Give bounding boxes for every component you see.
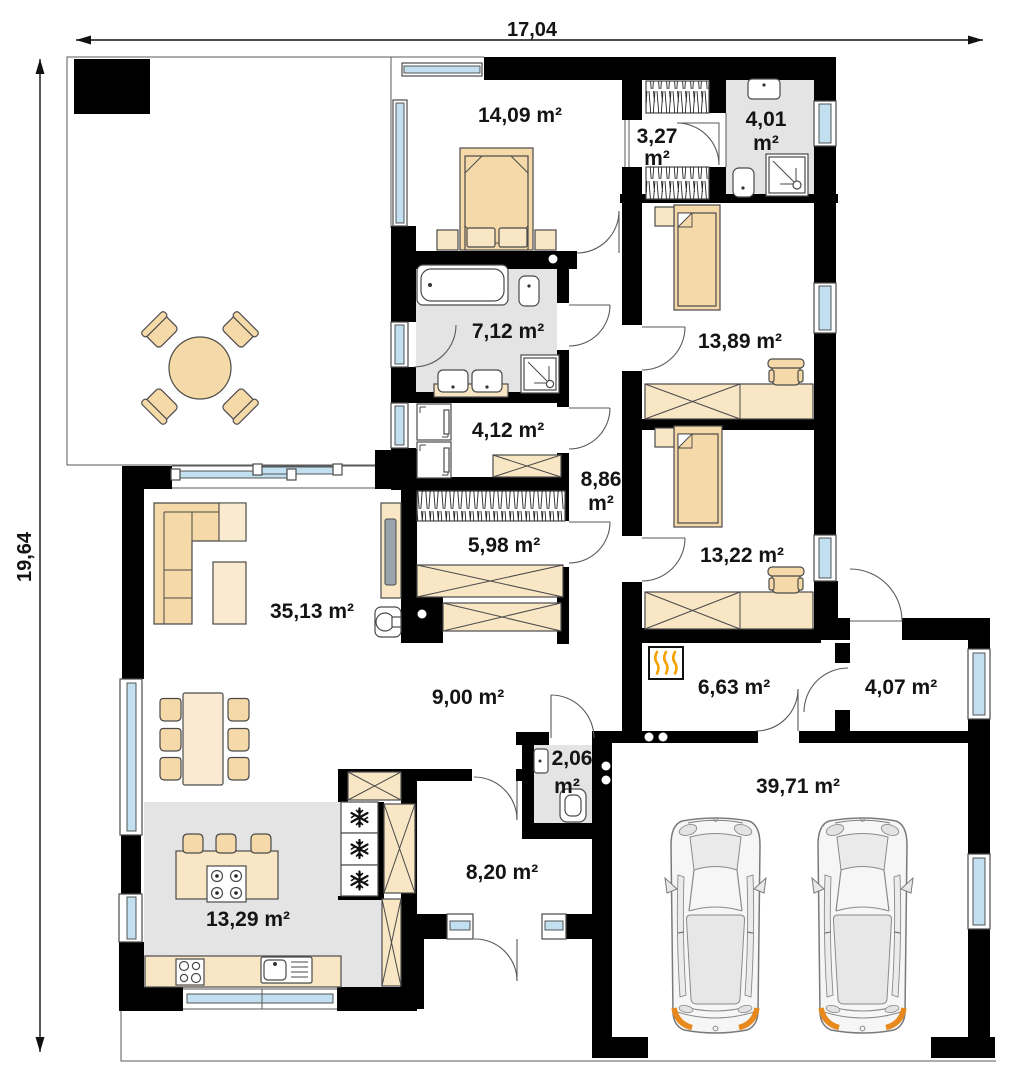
svg-text:2,06: 2,06 — [552, 747, 593, 770]
svg-text:13,29 m²: 13,29 m² — [206, 908, 290, 931]
svg-text:m²: m² — [588, 492, 614, 515]
svg-text:3,27: 3,27 — [637, 125, 678, 148]
svg-text:13,89 m²: 13,89 m² — [698, 330, 782, 353]
svg-text:8,20 m²: 8,20 m² — [466, 861, 538, 884]
svg-text:7,12 m²: 7,12 m² — [472, 320, 544, 343]
svg-text:5,98 m²: 5,98 m² — [468, 534, 540, 557]
svg-text:17,04: 17,04 — [507, 19, 558, 41]
svg-text:19,64: 19,64 — [14, 531, 36, 582]
svg-text:13,22 m²: 13,22 m² — [700, 544, 784, 567]
svg-text:m²: m² — [554, 775, 580, 798]
svg-text:4,01: 4,01 — [746, 108, 787, 131]
svg-text:35,13 m²: 35,13 m² — [270, 600, 354, 623]
svg-text:9,00 m²: 9,00 m² — [432, 686, 504, 709]
svg-text:8,86: 8,86 — [581, 468, 622, 491]
svg-text:6,63 m²: 6,63 m² — [698, 676, 770, 699]
svg-text:m²: m² — [753, 132, 779, 155]
svg-text:4,12 m²: 4,12 m² — [472, 419, 544, 442]
svg-text:4,07 m²: 4,07 m² — [865, 676, 937, 699]
svg-text:39,71 m²: 39,71 m² — [756, 775, 840, 798]
svg-text:m²: m² — [644, 147, 670, 170]
svg-text:14,09 m²: 14,09 m² — [478, 104, 562, 127]
